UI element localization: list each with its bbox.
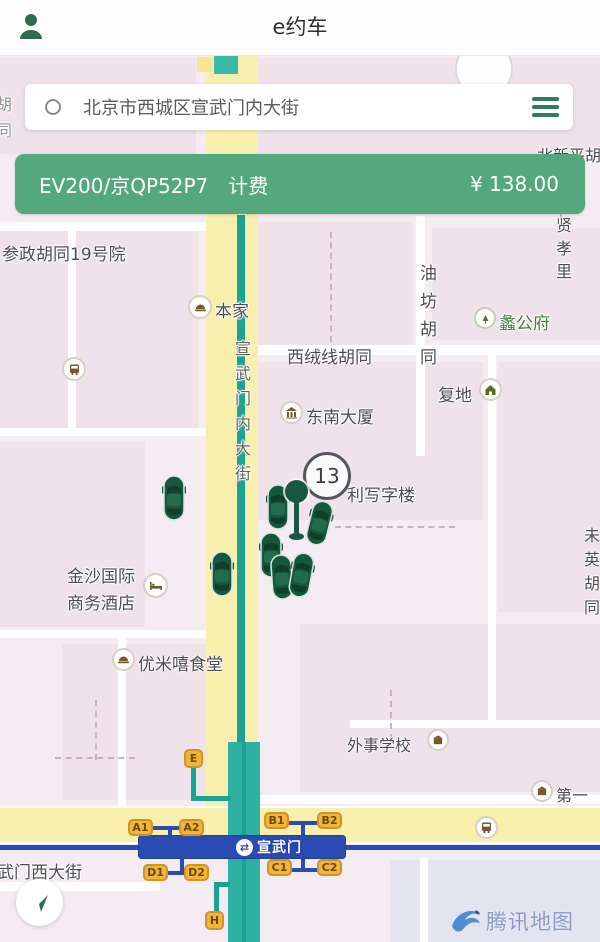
bus-stop-icon [475, 816, 498, 839]
exit-badge-a1: A1 [128, 819, 153, 836]
hamburger-menu-icon[interactable] [532, 97, 559, 117]
billing-status: 计费 [228, 170, 268, 199]
car-cluster-badge[interactable]: 13 [303, 452, 351, 500]
poi-label-xianxiaoli: 贤孝里 [550, 217, 574, 286]
poi-label-diyi: 第一 [556, 782, 588, 806]
school-icon [531, 780, 553, 802]
exit-badge-c1: C1 [267, 859, 292, 876]
car-marker-icon [208, 550, 236, 602]
exit-badge-d2: D2 [184, 864, 209, 881]
search-address[interactable]: 北京市西城区宣武门内大街 [83, 94, 532, 120]
road-stub [197, 57, 213, 72]
pickup-pin-base [289, 533, 304, 540]
poi-label-dongnan: 东南大厦 [306, 403, 374, 428]
exit-connector-h [214, 882, 230, 887]
poi-label-jinsha-line2: 商务酒店 [67, 591, 135, 618]
park-icon [474, 307, 496, 329]
road [488, 352, 496, 720]
map-attribution: 腾讯地图 [450, 906, 574, 936]
profile-button[interactable] [16, 11, 46, 47]
location-dot-icon [45, 99, 61, 115]
road-stub-teal [214, 55, 238, 74]
road-label-weiying: 未英胡同 [578, 527, 600, 623]
attribution-brand: 腾讯地图 [486, 906, 574, 936]
road [350, 720, 600, 728]
poi-label-jinsha-line1: 金沙国际 [67, 564, 135, 591]
office-building-icon [280, 401, 303, 424]
home-icon [479, 378, 502, 401]
exit-badge-e: E [184, 749, 203, 768]
exit-badge-d1: D1 [143, 864, 168, 881]
hotel-icon [188, 295, 212, 319]
poi-label-jinsha: 金沙国际 商务酒店 [67, 564, 135, 618]
exit-badge-c2: C2 [317, 859, 342, 876]
poi-label-waishi: 外事学校 [347, 732, 411, 756]
trip-info: EV200/京QP52P7 计费 [39, 170, 268, 199]
pickup-pin-icon [285, 480, 308, 503]
school-icon [427, 729, 449, 751]
edge-partial-label: 胡同 [0, 96, 14, 148]
exit-badge-h: H [205, 911, 224, 930]
app-header: e约车 [0, 0, 600, 56]
recenter-compass-button[interactable] [16, 879, 63, 926]
poi-label-canzheng: 参政胡同19号院 [2, 240, 126, 265]
poi-label-ligongfu: 蠡公府 [499, 309, 550, 334]
poi-label-youmi: 优米嘻食堂 [138, 650, 223, 675]
exit-connector-e [191, 796, 231, 801]
road-label-xirongxian: 西绒线胡同 [287, 343, 372, 368]
car-marker-icon [160, 474, 188, 526]
lane-dashed [330, 232, 332, 342]
bed-icon [143, 573, 168, 598]
exit-badge-b1: B1 [264, 812, 289, 829]
exit-badge-b2: B2 [317, 812, 342, 829]
compass-arrow-icon [28, 891, 52, 915]
poi-label-lixiezilou: 利写字楼 [347, 481, 415, 506]
road [0, 222, 206, 231]
tencent-maps-logo-icon [450, 906, 484, 936]
exit-badge-a2: A2 [179, 819, 204, 836]
road-label-xuanwumen-inner: 宣武门内大街 [229, 340, 253, 490]
bus-stop-icon [62, 357, 86, 381]
exit-connector-c [301, 858, 305, 870]
trip-status-banner[interactable]: EV200/京QP52P7 计费 ¥ 138.00 [15, 154, 585, 214]
restaurant-icon [112, 648, 135, 671]
road [420, 858, 428, 942]
road [0, 630, 226, 638]
transfer-arrows-icon: ⇄ [236, 839, 253, 856]
poi-label-fudi: 复地 [438, 381, 472, 406]
map-block [258, 222, 413, 345]
subway-station-bar: ⇄ 宣武门 [138, 835, 346, 859]
vehicle-plate: EV200/京QP52P7 [39, 170, 208, 199]
station-name: 宣武门 [257, 837, 302, 857]
person-icon [16, 11, 46, 43]
ride-hailing-app: { "header": { "title": "e约车" }, "search"… [0, 0, 600, 942]
map-block [300, 624, 600, 792]
pickup-pin-stick [294, 501, 299, 536]
fare-amount: ¥ 138.00 [470, 172, 559, 196]
lane-dashed [55, 757, 135, 759]
road-label-youfang: 油坊胡同 [414, 264, 439, 376]
page-title: e约车 [0, 0, 600, 55]
search-bar[interactable]: 北京市西城区宣武门内大街 [25, 84, 573, 130]
lane-dashed [95, 700, 97, 760]
lane-dashed [335, 526, 455, 528]
poi-label-benjia: 本家 [215, 297, 249, 322]
road [0, 428, 206, 436]
